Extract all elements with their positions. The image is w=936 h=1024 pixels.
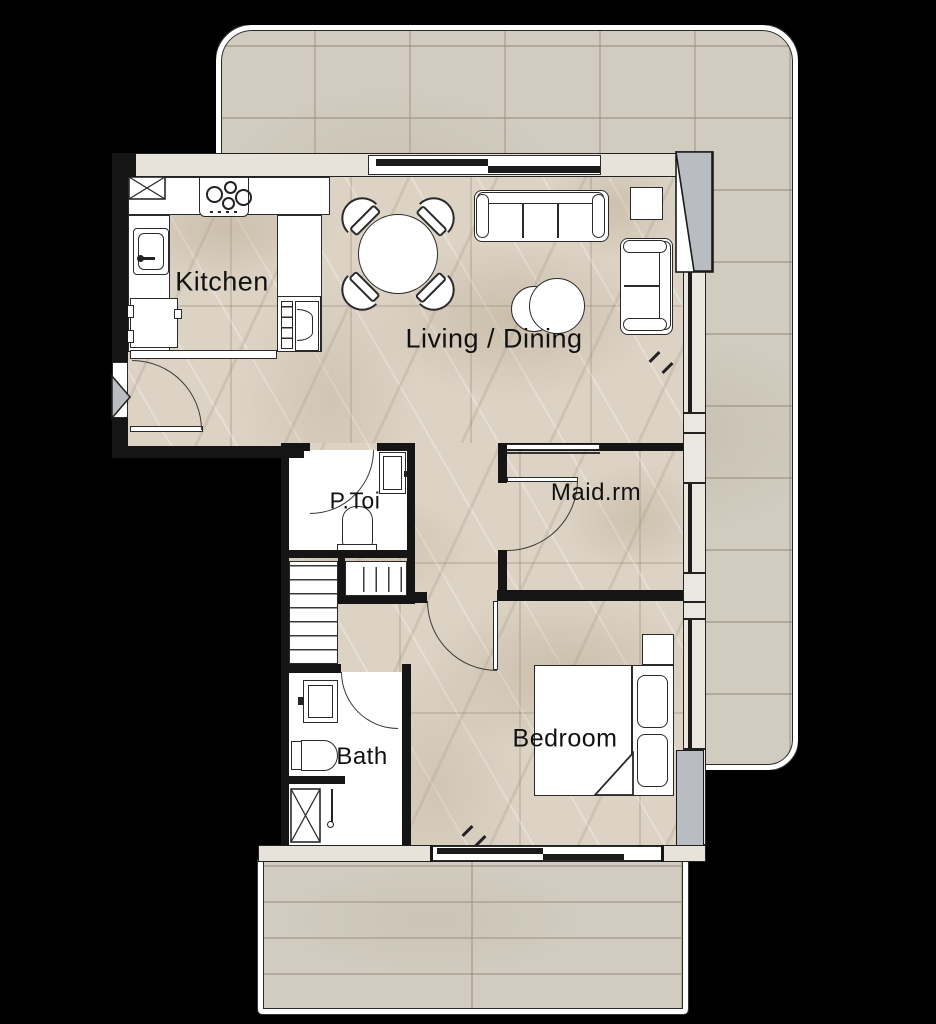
- wash-basin-icon: [303, 680, 338, 723]
- wall-kitchen-bottom: [112, 446, 304, 458]
- bath-label: Bath: [336, 743, 387, 771]
- wall-bath-top: [281, 664, 341, 673]
- kitchen-shelf: [130, 350, 277, 359]
- balcony-area: [258, 856, 688, 1014]
- kitchen-sink-icon: [133, 228, 169, 275]
- refrigerator-icon: [128, 176, 166, 200]
- sliding-glass: [543, 854, 624, 860]
- wall-ptoi-top: [281, 443, 310, 451]
- p-toi-label: P.Toi: [330, 488, 381, 515]
- gas-hob-icon: [199, 177, 249, 217]
- wash-basin-icon: [379, 452, 406, 494]
- shower-door: [331, 789, 333, 825]
- wall-lower-left: [281, 443, 289, 862]
- sliding-glass: [376, 159, 488, 166]
- wall-ptoi-right: [407, 443, 415, 557]
- window-icon: [506, 444, 600, 450]
- shower-tray-icon: [290, 788, 321, 843]
- blanket-fold: [594, 751, 635, 797]
- living-dining-label: Living / Dining: [405, 324, 582, 355]
- pillow-icon: [637, 675, 668, 728]
- washing-machine-icon: [130, 298, 178, 348]
- window-icon: [688, 620, 692, 748]
- sofa-icon: [474, 190, 609, 242]
- oven-icon: [277, 296, 321, 352]
- wall-closet-bottom: [338, 596, 415, 604]
- toilet-icon: [301, 740, 338, 771]
- floor-plan: Kitchen Living / Dining P.Toi Maid.rm Ba…: [0, 0, 936, 1024]
- wall-stub: [407, 592, 427, 603]
- window-icon: [688, 484, 692, 572]
- nightstand-icon: [642, 634, 674, 665]
- wall-bath-right: [402, 664, 411, 845]
- shelf-closet-icon: [289, 561, 338, 664]
- sliding-glass: [488, 166, 600, 173]
- round-dining-table-icon: [358, 214, 438, 294]
- wall-ptoi-bottom: [281, 550, 415, 558]
- wall-bath-separator: [288, 776, 345, 784]
- shower-door-knob: [327, 821, 334, 828]
- entry-arrow-icon: [110, 374, 132, 420]
- wall-wedge: [675, 151, 714, 273]
- sliding-glass: [437, 848, 543, 854]
- maid-room-label: Maid.rm: [551, 479, 641, 507]
- wall-tick: [430, 845, 433, 862]
- wall-tick: [661, 845, 664, 862]
- side-table-icon: [630, 187, 663, 220]
- bedroom-label: Bedroom: [513, 725, 618, 754]
- wall-bedroom-top: [497, 590, 683, 601]
- window-sill: [506, 452, 600, 454]
- wall-maid-left: [498, 443, 507, 483]
- window-icon: [688, 272, 692, 412]
- pillow-icon: [637, 734, 668, 787]
- kitchen-label: Kitchen: [175, 267, 269, 298]
- rail-closet-icon: [345, 561, 407, 596]
- wall-left: [112, 153, 128, 362]
- armchair-icon: [620, 238, 673, 335]
